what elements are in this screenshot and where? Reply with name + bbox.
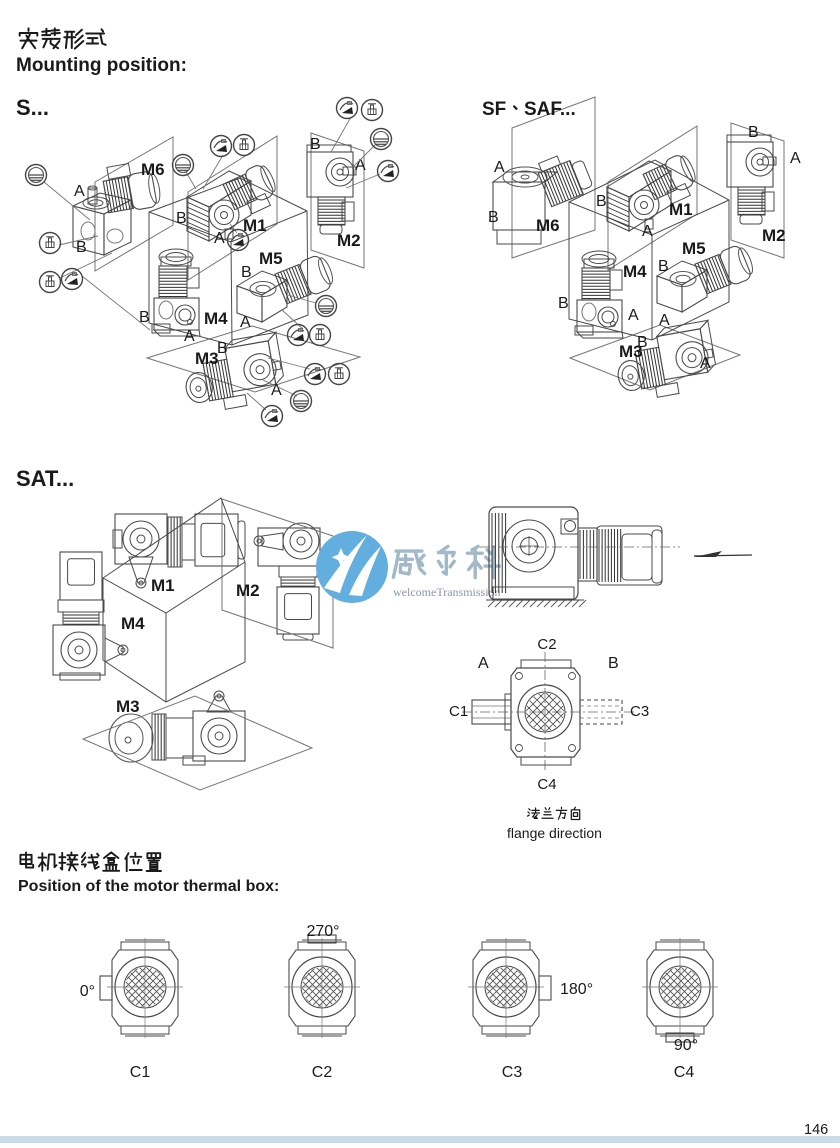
svg-text:A: A bbox=[240, 314, 251, 331]
svg-text:M1: M1 bbox=[151, 576, 175, 595]
svg-text:S...: S... bbox=[16, 95, 49, 120]
svg-text:A: A bbox=[790, 150, 801, 167]
svg-text:B: B bbox=[748, 124, 759, 141]
svg-text:B: B bbox=[596, 193, 607, 210]
svg-text:C4: C4 bbox=[537, 776, 556, 793]
svg-text:0°: 0° bbox=[80, 983, 95, 1000]
svg-text:A: A bbox=[642, 223, 653, 240]
svg-text:C1: C1 bbox=[130, 1064, 151, 1081]
svg-text:A: A bbox=[628, 307, 639, 324]
svg-text:B: B bbox=[176, 210, 187, 227]
svg-text:M4: M4 bbox=[623, 262, 647, 281]
svg-text:A: A bbox=[494, 159, 505, 176]
svg-text:180°: 180° bbox=[560, 981, 593, 998]
svg-text:M5: M5 bbox=[682, 239, 706, 258]
svg-text:M2: M2 bbox=[236, 581, 260, 600]
svg-text:C2: C2 bbox=[312, 1064, 333, 1081]
svg-text:M6: M6 bbox=[536, 216, 560, 235]
svg-text:M4: M4 bbox=[204, 309, 228, 328]
svg-text:Position of the motor thermal: Position of the motor thermal box: bbox=[18, 878, 279, 895]
svg-text:M3: M3 bbox=[116, 697, 140, 716]
svg-text:B: B bbox=[76, 239, 87, 256]
svg-text:SAF...: SAF... bbox=[524, 99, 576, 120]
svg-text:A: A bbox=[184, 328, 195, 345]
svg-text:B: B bbox=[217, 340, 228, 357]
svg-text:C1: C1 bbox=[449, 703, 468, 720]
svg-text:A: A bbox=[700, 355, 711, 372]
svg-text:B: B bbox=[310, 136, 321, 153]
svg-text:M2: M2 bbox=[762, 226, 786, 245]
svg-text:M6: M6 bbox=[141, 160, 165, 179]
svg-text:flange direction: flange direction bbox=[507, 825, 602, 841]
svg-text:C3: C3 bbox=[630, 703, 649, 720]
svg-text:M2: M2 bbox=[337, 231, 361, 250]
svg-text:SF: SF bbox=[482, 99, 506, 120]
svg-text:M1: M1 bbox=[243, 216, 267, 235]
svg-text:A: A bbox=[74, 183, 85, 200]
svg-text:B: B bbox=[558, 295, 569, 312]
svg-text:C3: C3 bbox=[502, 1064, 523, 1081]
svg-text:B: B bbox=[241, 264, 252, 281]
svg-text:M3: M3 bbox=[195, 349, 219, 368]
svg-text:M4: M4 bbox=[121, 614, 145, 633]
svg-text:A: A bbox=[214, 230, 225, 247]
svg-text:M1: M1 bbox=[669, 200, 693, 219]
svg-text:B: B bbox=[637, 334, 648, 351]
svg-text:146: 146 bbox=[804, 1122, 828, 1138]
svg-text:Mounting position:: Mounting position: bbox=[16, 55, 187, 76]
svg-text:C2: C2 bbox=[537, 636, 556, 653]
svg-text:B: B bbox=[488, 209, 499, 226]
svg-text:B: B bbox=[658, 258, 669, 275]
svg-text:A: A bbox=[659, 312, 670, 329]
svg-text:270°: 270° bbox=[306, 923, 339, 940]
svg-text:C4: C4 bbox=[674, 1064, 695, 1081]
svg-text:B: B bbox=[608, 655, 619, 672]
svg-text:M5: M5 bbox=[259, 249, 283, 268]
svg-text:welcomeTransmission: welcomeTransmission bbox=[393, 585, 501, 599]
svg-text:SAT...: SAT... bbox=[16, 466, 74, 491]
svg-text:90°: 90° bbox=[674, 1037, 698, 1054]
svg-text:B: B bbox=[139, 309, 150, 326]
svg-text:A: A bbox=[478, 655, 489, 672]
